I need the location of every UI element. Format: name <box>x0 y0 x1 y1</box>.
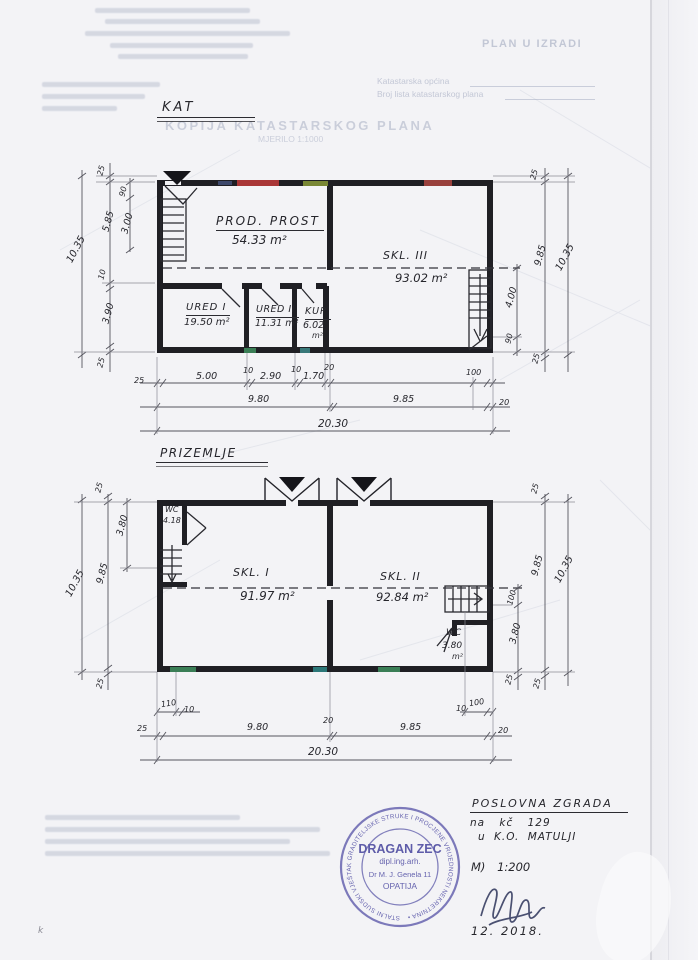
dim-label: 2.90 <box>260 371 281 382</box>
notes-municipality: u K.O. MATULJI <box>478 831 576 843</box>
room-name: PROD. PROST <box>216 214 324 231</box>
room-area: 93.02 m² <box>395 271 447 285</box>
faint-footer-line <box>45 851 330 856</box>
dim-label: 5.00 <box>196 371 217 382</box>
notes-scale: M) 1:200 <box>471 860 530 874</box>
faint-footer-line <box>45 815 240 820</box>
dim-label: 20.30 <box>318 418 348 430</box>
notes-date: 12. 2018. <box>471 924 544 938</box>
stamp-city: OPATIJA <box>383 881 417 891</box>
signature-scribble <box>481 889 545 925</box>
dim-label: 20 <box>324 363 334 372</box>
stamp-inner-ring <box>362 829 438 905</box>
room-area: 11.31 m² <box>255 318 298 329</box>
stamp-name: DRAGAN ZEC <box>358 842 441 856</box>
dim-label: 20 <box>498 726 508 735</box>
scanned-plan-document: PLAN U IZRADI Katastarska općina Broj li… <box>0 0 698 960</box>
notes-heading-underline <box>470 812 628 813</box>
dim-label: 10 <box>243 366 253 375</box>
floor-label-underline <box>156 462 268 467</box>
dim-label: 20 <box>323 716 333 725</box>
room-name: URED I <box>186 302 230 316</box>
stamp-address: Dr M. J. Genela 11 <box>369 870 431 879</box>
room-area: 3.80 <box>442 641 462 651</box>
room-name: WC <box>446 628 461 638</box>
dim-label: 1.70 <box>303 371 324 382</box>
floor-label-prizemlje: PRIZEMLJE <box>160 446 237 460</box>
room-name: KUP <box>305 306 331 320</box>
dim-label: 9.85 <box>400 722 421 733</box>
dim-label: 10 <box>456 704 466 713</box>
room-name: SKL. II <box>380 570 421 583</box>
dim-label: 25 <box>137 724 147 733</box>
room-area: 91.97 m² <box>240 589 295 603</box>
dim-label: 20 <box>499 398 509 407</box>
prizemlje-canopies <box>265 477 391 501</box>
paper-edge-line <box>650 0 652 960</box>
room-area: 92.84 m² <box>376 590 428 604</box>
room-area-unit: m² <box>312 331 323 340</box>
notes-parcel: na kč 129 <box>470 817 551 829</box>
room-name: SKL. III <box>383 249 428 262</box>
corner-mark: k <box>38 926 43 936</box>
dim-label: 20.30 <box>308 746 338 758</box>
stamp-title: dipl.ing.arh. <box>379 857 420 866</box>
dim-label: 25 <box>134 376 144 385</box>
room-area-unit: m² <box>452 652 463 661</box>
room-area: 6.02 <box>303 320 324 331</box>
faint-footer-line <box>45 827 320 832</box>
room-name: SKL. I <box>233 566 270 579</box>
notes-heading: POSLOVNA ZGRADA <box>472 797 613 810</box>
dim-label: 9.80 <box>247 722 268 733</box>
stamp-outer-ring <box>341 808 459 926</box>
dim-label: 10 <box>291 365 301 374</box>
architect-stamp: STALNI SUDSKI VJEŠTAK GRADITELJSKE STRUK… <box>330 797 475 942</box>
paper-edge-strip <box>651 0 698 960</box>
room-area: 19.50 m² <box>184 317 230 328</box>
room-name: URED II <box>256 304 299 318</box>
room-name: WC <box>165 505 179 514</box>
dim-label: 9.80 <box>248 394 269 405</box>
floor-label-underline <box>157 117 255 122</box>
dim-label: 9.85 <box>393 394 414 405</box>
prizemlje-stairs-doors <box>160 512 489 652</box>
dim-label: 10 <box>184 705 194 714</box>
dim-label: 100 <box>466 368 481 377</box>
faint-footer-line <box>45 839 290 844</box>
room-area: 4.18 <box>163 516 181 525</box>
floor-label-kat: KAT <box>162 100 195 115</box>
paper-edge-fold <box>668 0 669 960</box>
room-area: 54.33 m² <box>232 233 287 247</box>
